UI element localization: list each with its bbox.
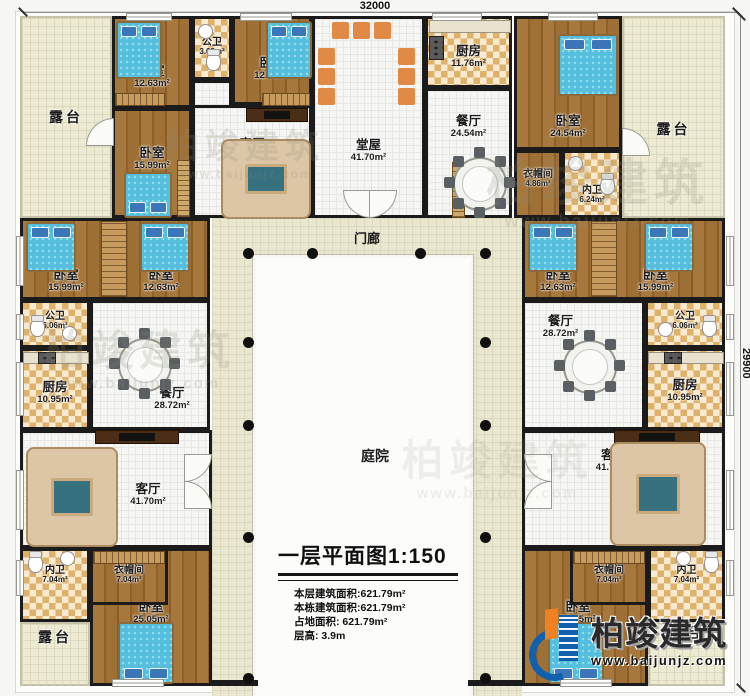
stove-icon [429, 36, 444, 60]
window-marker [16, 470, 24, 530]
pillar-dot-icon [307, 248, 318, 259]
brand-logo-text: 柏竣建筑 www.baijunjz.com [591, 616, 727, 667]
title-rule [278, 573, 458, 581]
room-terrace-bottom-left: 露台 [20, 622, 90, 686]
pillar-dot-icon [480, 673, 491, 684]
stat-floor-area: 本层建筑面积:621.79m² [278, 587, 458, 601]
window-marker [726, 236, 734, 286]
sink-icon [568, 156, 583, 171]
pillar-dot-icon [243, 248, 254, 259]
toilet-icon [28, 554, 43, 573]
bed-icon [26, 222, 76, 272]
kitchen-counter-icon [23, 352, 89, 364]
window-marker [726, 560, 734, 596]
tv-cabinet-icon [95, 430, 179, 444]
kitchen-counter-icon [648, 352, 724, 364]
window-marker [126, 13, 172, 21]
bed-icon [124, 172, 172, 218]
pillar-dot-icon [243, 532, 254, 543]
sofa-set-icon [610, 442, 706, 546]
toilet-icon [30, 318, 45, 337]
title-block: 一层平面图1:150 本层建筑面积:621.79m² 本栋建筑面积:621.79… [278, 540, 458, 643]
hallway-patch [192, 80, 232, 108]
window-marker [16, 314, 24, 340]
stat-footprint-area: 占地面积: 621.79m² [278, 615, 458, 629]
window-marker [16, 236, 24, 286]
pillar-dot-icon [243, 337, 254, 348]
tv-cabinet-icon [246, 108, 308, 122]
hall-chairs-icon [332, 22, 349, 39]
sink-icon [198, 24, 213, 39]
dining-table-icon [118, 338, 172, 392]
window-marker [16, 560, 24, 596]
window-marker [726, 362, 734, 416]
stove-icon [38, 352, 56, 364]
kitchen-counter-icon [429, 20, 511, 33]
bed-icon [558, 34, 618, 96]
sofa-set-icon [221, 139, 311, 219]
sink-icon [658, 322, 673, 337]
pillar-dot-icon [480, 420, 491, 431]
bed-icon [644, 222, 694, 272]
stove-icon [664, 352, 682, 364]
wardrobe-icon [591, 221, 617, 297]
window-marker [432, 13, 482, 21]
room-terrace-top-right: 露台 [622, 16, 725, 218]
bed-icon [528, 222, 578, 272]
dimension-top-value: 32000 [352, 0, 398, 12]
pillar-dot-icon [480, 337, 491, 348]
bed-icon [118, 622, 174, 684]
pillar-dot-icon [243, 420, 254, 431]
pillar-dot-icon [480, 248, 491, 259]
dimension-right-value: 29900 [740, 348, 750, 379]
room-cloakroom-top: 衣帽间4.86m² [514, 150, 562, 218]
wall-segment [468, 680, 522, 686]
dimension-line-top [22, 12, 738, 13]
bed-icon [140, 222, 190, 272]
toilet-icon [704, 554, 719, 573]
stat-storey-height: 层高: 3.9m [278, 629, 458, 643]
window-marker [112, 679, 164, 687]
room-main-hall: 堂屋41.70m² [312, 16, 425, 218]
sofa-set-icon [26, 447, 118, 547]
wardrobe-icon [573, 551, 645, 564]
dining-table-icon [563, 340, 617, 394]
sink-icon [60, 551, 75, 566]
toilet-icon [206, 52, 221, 71]
toilet-icon [600, 176, 615, 195]
pillar-dot-icon [415, 248, 426, 259]
wardrobe-icon [262, 93, 310, 106]
room-terrace-top-left: 露台 [20, 16, 112, 218]
dining-table-icon [453, 157, 507, 211]
wardrobe-icon [101, 221, 127, 297]
bed-icon [266, 21, 312, 79]
floor-plan: 露台 卧室12.63m² 公卫3.68m² 卧室12.63m² 客厅24.56m… [0, 0, 750, 696]
window-marker [726, 314, 734, 340]
sink-icon [62, 326, 77, 341]
window-marker [548, 13, 598, 21]
wardrobe-icon [93, 551, 165, 564]
stat-building-area: 本栋建筑面积:621.79m² [278, 601, 458, 615]
window-marker [16, 362, 24, 416]
window-marker [240, 13, 292, 21]
toilet-icon [702, 318, 717, 337]
brand-logo: 柏竣建筑 www.baijunjz.com [531, 601, 727, 683]
brand-logo-icon [531, 601, 588, 683]
window-marker [726, 470, 734, 530]
stairs-icon [177, 160, 190, 217]
bed-icon [116, 21, 162, 79]
pillar-dot-icon [243, 673, 254, 684]
wardrobe-icon [115, 93, 165, 106]
pillar-dot-icon [480, 532, 491, 543]
plan-title: 一层平面图1:150 [278, 540, 458, 570]
sink-icon [676, 551, 691, 566]
